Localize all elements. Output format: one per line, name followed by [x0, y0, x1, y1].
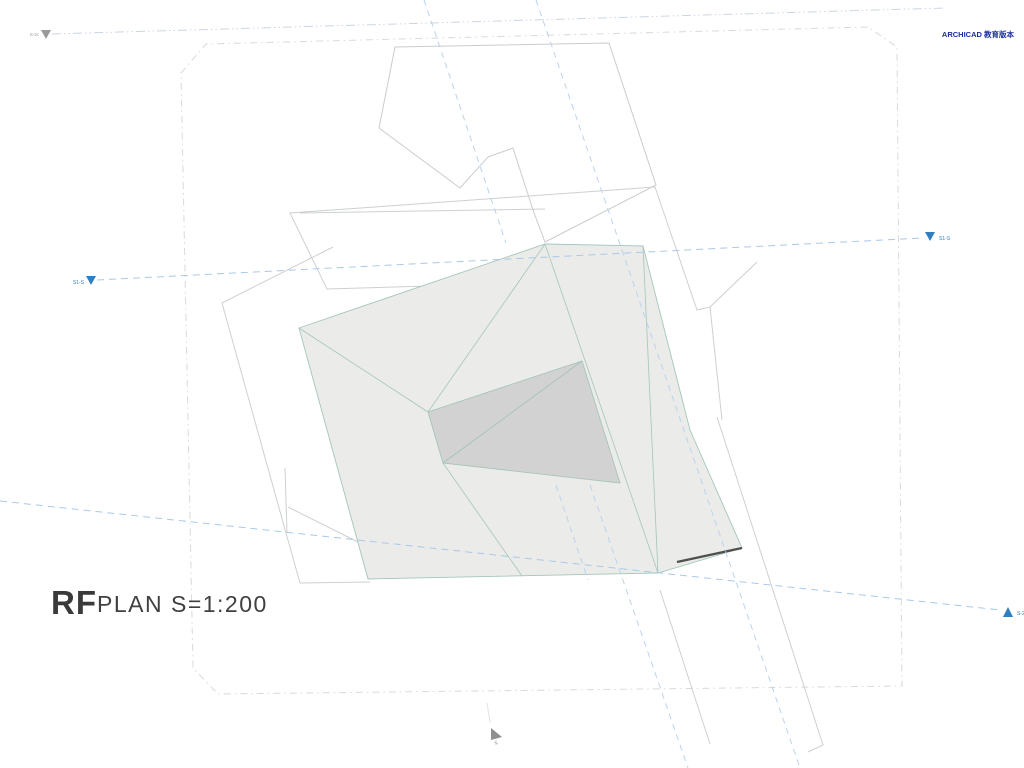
section-marker-s2c[interactable]: S-2c — [30, 30, 51, 39]
plan-canvas[interactable]: S1-S S1-S S-2 S-2c RF PLAN S=1:200 ARCHI… — [0, 0, 1024, 768]
section-marker-s1-left-icon[interactable] — [86, 276, 96, 285]
section-marker-s2c-label: S-2c — [30, 32, 40, 37]
roof-plan[interactable] — [299, 244, 742, 579]
section-marker-s1-right-label: S1-S — [939, 236, 951, 242]
plan-title-name[interactable]: RF — [51, 584, 97, 621]
section-line-s2c[interactable] — [52, 8, 945, 34]
plan-title-scale[interactable]: PLAN S=1:200 — [97, 591, 268, 617]
plan-title[interactable]: RF PLAN S=1:200 — [51, 584, 268, 621]
building-outline-upper[interactable] — [379, 43, 656, 242]
section-marker-s2c-icon[interactable] — [41, 30, 51, 39]
section-marker-s2-icon[interactable] — [1003, 607, 1013, 617]
section-marker-s1-right-icon[interactable] — [925, 232, 935, 241]
archicad-floor-plan-view: S1-S S1-S S-2 S-2c RF PLAN S=1:200 ARCHI… — [0, 0, 1024, 768]
archicad-watermark: ARCHICAD 教育版本 — [942, 29, 1015, 39]
cursor-arrow — [487, 703, 502, 745]
section-marker-s2-label: S-2 — [1017, 611, 1024, 617]
section-marker-s1-left-label: S1-S — [73, 280, 85, 286]
